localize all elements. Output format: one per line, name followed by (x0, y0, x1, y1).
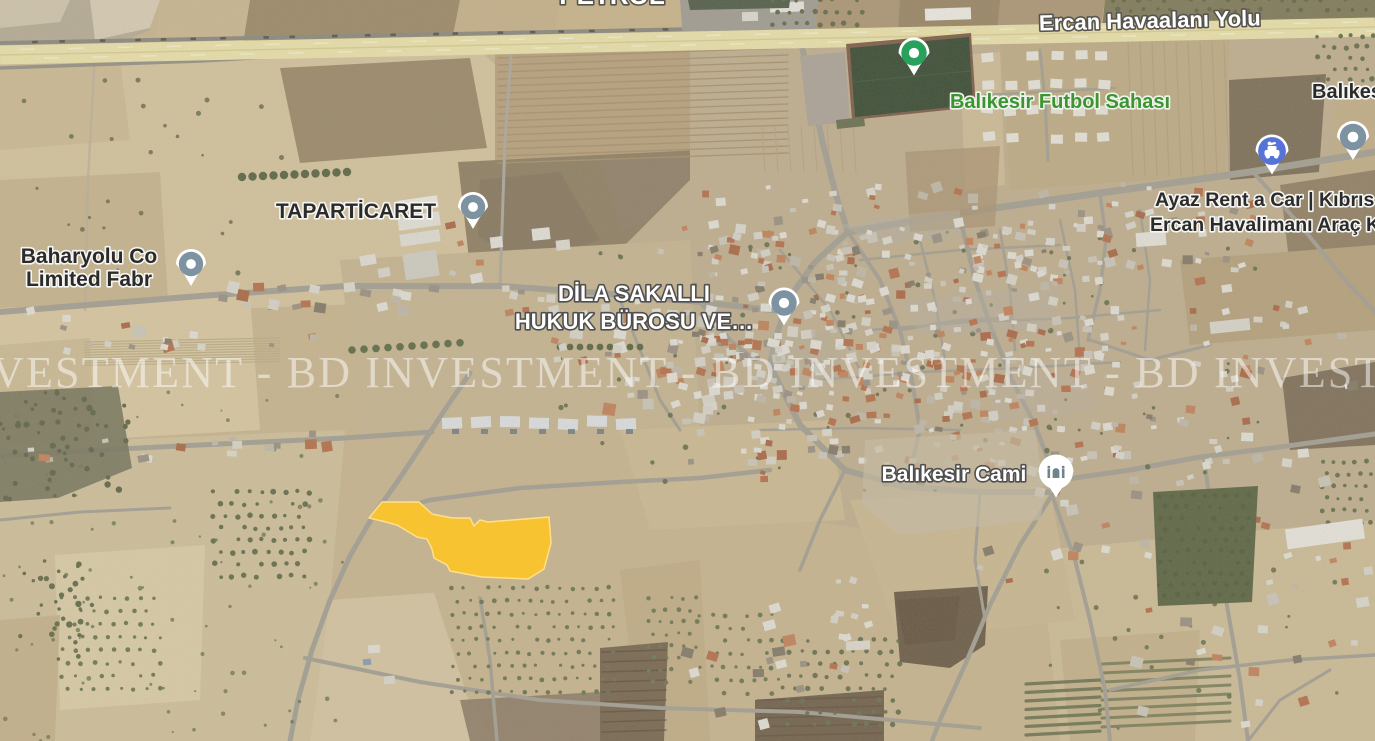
svg-text:Baharyolu Co: Baharyolu Co (21, 245, 158, 268)
svg-text:Ayaz Rent a Car | Kıbrıs: Ayaz Rent a Car | Kıbrıs (1155, 189, 1374, 211)
svg-text:Limited Fabr: Limited Fabr (26, 268, 152, 291)
svg-text:Ercan Havalimanı Araç Ki: Ercan Havalimanı Araç Ki (1150, 214, 1375, 236)
svg-text:Balıkesir Cami: Balıkesir Cami (882, 463, 1027, 486)
svg-text:HUKUK BÜROSU VE…: HUKUK BÜROSU VE… (515, 309, 753, 334)
svg-text:Ercan Havaalanı Yolu: Ercan Havaalanı Yolu (1039, 5, 1261, 35)
svg-text:Balıkesir Futbol Sahası: Balıkesir Futbol Sahası (950, 91, 1170, 113)
svg-text:VESTMENT - BD INVESTMENT - BD: VESTMENT - BD INVESTMENT - BD INVESTMENT… (0, 348, 1375, 397)
svg-text:DİLA SAKALLI: DİLA SAKALLI (558, 281, 710, 306)
svg-text:Balıkes: Balıkes (1312, 81, 1375, 103)
svg-text:PETROL: PETROL (559, 0, 665, 10)
svg-text:TAPARTİCARET: TAPARTİCARET (276, 200, 436, 223)
